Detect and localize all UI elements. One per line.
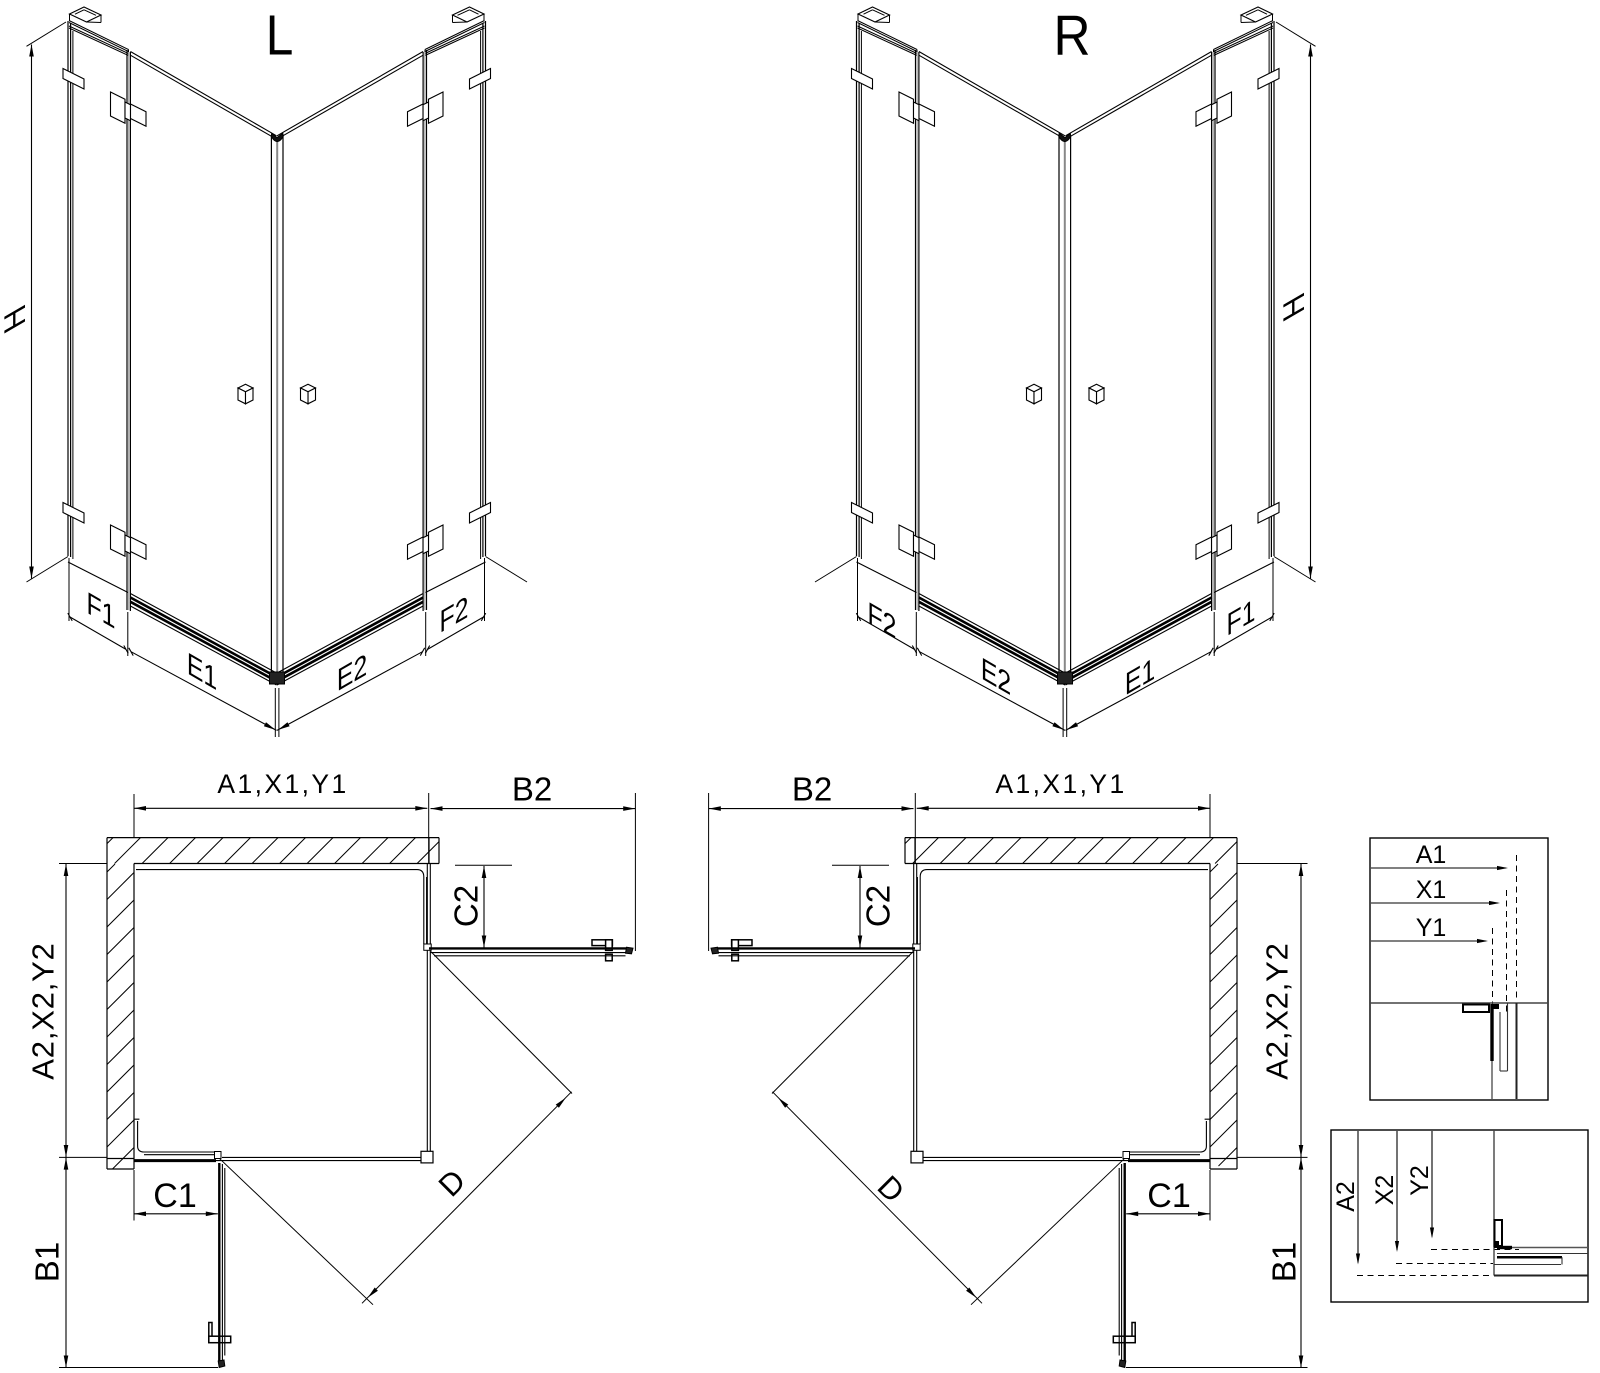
svg-text:B2: B2: [792, 771, 832, 808]
svg-text:A1,X1,Y1: A1,X1,Y1: [217, 769, 348, 799]
svg-text:B1: B1: [29, 1242, 66, 1282]
svg-text:C1: C1: [153, 1177, 196, 1215]
svg-text:A1: A1: [1416, 841, 1447, 869]
svg-text:R: R: [1053, 4, 1090, 67]
svg-text:A2,X2,Y2: A2,X2,Y2: [1260, 942, 1295, 1079]
svg-text:C2: C2: [860, 885, 897, 927]
svg-text:X1: X1: [1416, 876, 1447, 904]
svg-text:B1: B1: [1266, 1242, 1303, 1282]
svg-text:Y1: Y1: [1416, 914, 1447, 942]
svg-text:X2: X2: [1371, 1175, 1399, 1206]
svg-text:L: L: [266, 4, 294, 67]
svg-text:B2: B2: [512, 771, 552, 808]
svg-text:C1: C1: [1147, 1177, 1190, 1215]
svg-text:A2,X2,Y2: A2,X2,Y2: [26, 942, 61, 1079]
svg-text:C2: C2: [448, 885, 485, 927]
svg-text:Y2: Y2: [1406, 1165, 1434, 1196]
svg-text:A2: A2: [1332, 1181, 1360, 1212]
svg-text:A1,X1,Y1: A1,X1,Y1: [995, 769, 1126, 799]
